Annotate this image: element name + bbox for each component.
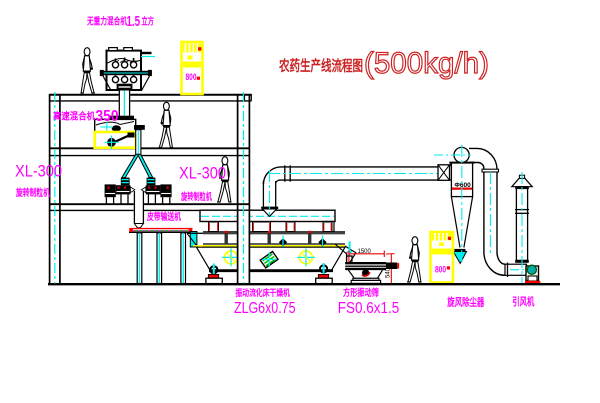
svg-text:800: 800 — [186, 72, 197, 82]
svg-text:旋风除尘器: 旋风除尘器 — [447, 296, 485, 309]
svg-text:ZLG6x0.75: ZLG6x0.75 — [234, 300, 296, 317]
svg-text:引风机: 引风机 — [512, 295, 534, 308]
svg-text:方形振动筛: 方形振动筛 — [343, 287, 379, 299]
svg-text:无重力混合机: 无重力混合机 — [86, 15, 127, 28]
svg-text:1.5: 1.5 — [127, 13, 141, 30]
svg-text:350: 350 — [96, 108, 119, 125]
svg-text:高速混合机: 高速混合机 — [53, 111, 95, 123]
svg-text:旋转制粒机: 旋转制粒机 — [15, 187, 50, 199]
svg-text:XL-300: XL-300 — [179, 164, 226, 183]
svg-text:800: 800 — [435, 265, 446, 275]
svg-text:XL-300: XL-300 — [15, 162, 62, 181]
svg-text:旋转制粒机: 旋转制粒机 — [180, 191, 212, 203]
svg-text:(500kg/h): (500kg/h) — [364, 47, 489, 80]
svg-text:振动流化床干燥机: 振动流化床干燥机 — [236, 287, 291, 298]
svg-text:立方: 立方 — [142, 15, 155, 28]
svg-text:皮带输送机: 皮带输送机 — [146, 211, 181, 223]
svg-text:FS0.6x1.5: FS0.6x1.5 — [338, 300, 400, 317]
svg-text:农药生产线流程图: 农药生产线流程图 — [278, 57, 363, 75]
